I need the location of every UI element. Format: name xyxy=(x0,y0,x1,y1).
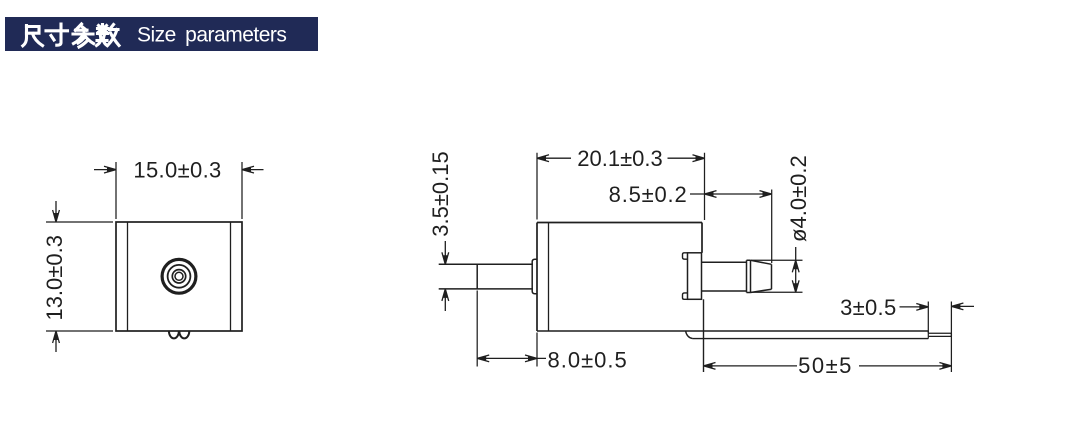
svg-text:3±0.5: 3±0.5 xyxy=(840,295,896,320)
svg-text:8.0±0.5: 8.0±0.5 xyxy=(548,348,628,373)
svg-text:13.0±0.3: 13.0±0.3 xyxy=(42,235,67,320)
svg-text:20.1±0.3: 20.1±0.3 xyxy=(577,146,662,171)
svg-text:Size parameters: Size parameters xyxy=(137,24,286,47)
svg-text:15.0±0.3: 15.0±0.3 xyxy=(133,158,221,183)
svg-text:50±5: 50±5 xyxy=(798,353,853,378)
svg-text:3.5±0.15: 3.5±0.15 xyxy=(428,151,453,236)
svg-text:8.5±0.2: 8.5±0.2 xyxy=(609,182,688,207)
svg-text:ø4.0±0.2: ø4.0±0.2 xyxy=(786,155,811,242)
